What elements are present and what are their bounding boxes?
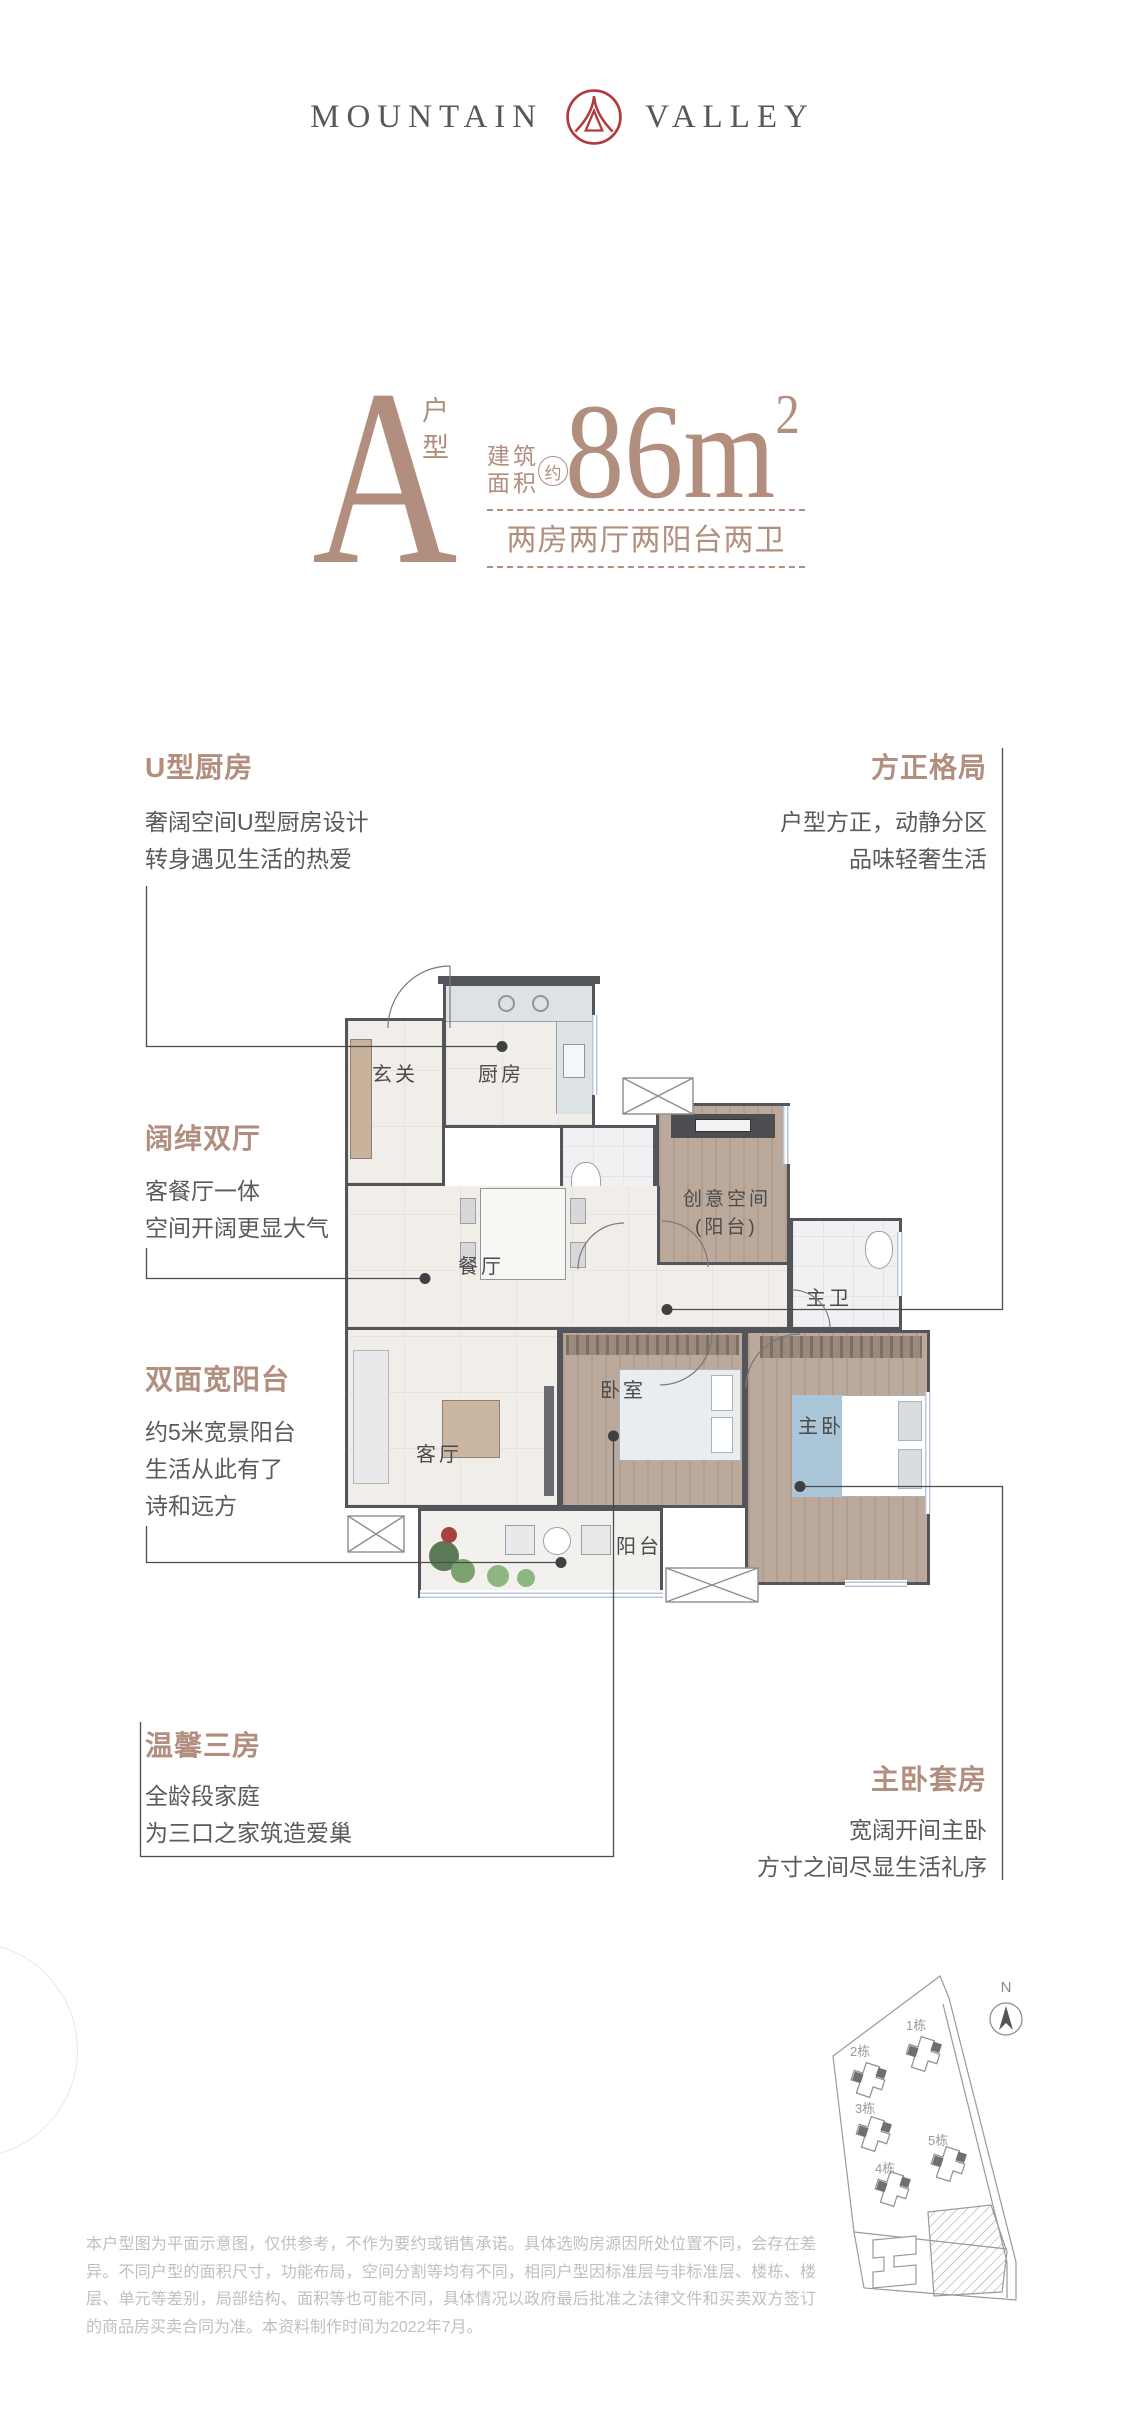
site-buildings: 1栋 2栋 3栋 4栋 5栋: [848, 2018, 968, 2209]
leader-dot: [497, 1041, 508, 1052]
building-label: 3栋: [855, 2101, 875, 2116]
leader-master-suite: [800, 1487, 1003, 1881]
leader-dot: [795, 1481, 806, 1492]
building-label: 1栋: [906, 2018, 926, 2033]
building-icon: [848, 2060, 888, 2100]
leader-dot: [420, 1273, 431, 1284]
leader-three-rooms: [141, 1436, 614, 1857]
leader-dot: [556, 1557, 567, 1568]
north-label: N: [1001, 1979, 1012, 1996]
leader-square-layout: [667, 748, 1003, 1310]
building-label: 4栋: [875, 2161, 895, 2176]
bay-windows: [348, 1078, 758, 1602]
site-plan: N 1栋 2栋 3栋 4栋 5栋: [828, 1962, 1028, 2334]
north-indicator: N: [990, 1979, 1022, 2035]
building-icon: [928, 2144, 968, 2184]
brochure-page: { "logo": { "word_left": "MOUNTAIN", "wo…: [0, 0, 1125, 2436]
building-label: 2栋: [850, 2044, 870, 2059]
leader-double-hall: [147, 1248, 426, 1279]
disclaimer-text: 本户型图为平面示意图，仅供参考，不作为要约或销售承诺。具体选购房源因所处位置不同…: [86, 2231, 816, 2341]
leader-dot: [608, 1431, 619, 1442]
door-arcs: [388, 966, 830, 1388]
north-arrow-icon: [999, 2006, 1013, 2030]
site-hatched-area: [928, 2205, 1007, 2296]
site-building-footprint: [873, 2236, 916, 2288]
leader-dot: [662, 1304, 673, 1315]
building-icon: [903, 2034, 943, 2074]
building-icon: [853, 2114, 893, 2154]
building-label: 5栋: [928, 2133, 948, 2148]
